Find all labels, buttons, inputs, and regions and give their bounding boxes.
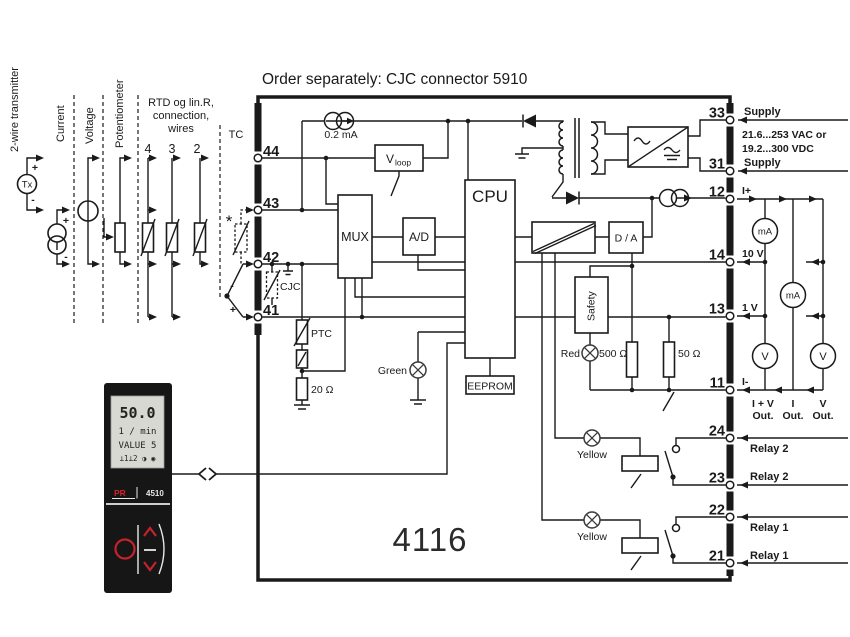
- acdc-converter: [628, 127, 688, 167]
- terminal-22-number: 22: [709, 503, 725, 519]
- wiring-diagram: Order separately: CJC connector 5910 411…: [0, 0, 850, 637]
- ma-meter-label: mA: [758, 227, 773, 238]
- plus-sign: +: [63, 215, 69, 227]
- label-voltage: Voltage: [84, 107, 96, 144]
- terminal-24-number: 24: [709, 424, 725, 440]
- relay1-label: Relay 1: [750, 522, 789, 534]
- i-minus-label: I-: [742, 376, 749, 388]
- minus-sign: -: [31, 194, 35, 206]
- relay1-contact: [673, 525, 680, 532]
- lcd-status-icons: ⊥1⊥2 ◑ ◉: [119, 454, 156, 463]
- terminal-42: [254, 258, 263, 271]
- terminal-11: [726, 384, 735, 397]
- terminal-24: [726, 432, 735, 445]
- yellow-led-label: Yellow: [577, 449, 607, 461]
- label-wire2: 2: [194, 142, 201, 156]
- lcd-line3: VALUE 5: [119, 441, 157, 451]
- relay2-coil: [622, 456, 658, 471]
- external-output-wiring: [737, 117, 848, 567]
- terminal-44-number: 44: [263, 144, 279, 160]
- safety-label: Safety: [586, 290, 598, 321]
- red-led-label: Red: [561, 348, 580, 360]
- eeprom-label: EEPROM: [467, 381, 513, 393]
- mux-label: MUX: [341, 230, 369, 244]
- trim-resistor: [297, 350, 308, 368]
- r20-resistor: [297, 378, 308, 400]
- r50-label: 50 Ω: [678, 348, 701, 360]
- terminal-41-number: 41: [263, 303, 279, 319]
- out2-suffix: Out.: [783, 410, 804, 422]
- label-2wire-transmitter: 2-wire transmitter: [9, 67, 21, 152]
- r500-resistor: [627, 342, 638, 377]
- r50-resistor: [664, 342, 675, 377]
- potentiometer-symbol: [115, 223, 125, 252]
- terminal-12-number: 12: [709, 185, 725, 201]
- supply-range-2: 19.2...300 VDC: [742, 143, 814, 155]
- i-plus-label: I+: [742, 185, 751, 197]
- cpu-block: [465, 180, 515, 358]
- v-meter-label: V: [819, 351, 827, 363]
- plus-sign: +: [230, 304, 236, 316]
- supply-label-top: Supply: [744, 106, 782, 118]
- label-wire4: 4: [145, 142, 152, 156]
- vloop-sub-label: loop: [395, 158, 411, 168]
- cjc-label: CJC: [280, 281, 301, 293]
- plus-sign: +: [32, 162, 38, 174]
- v-meter-label: V: [761, 351, 769, 363]
- lcd-unit: 1 / min: [119, 427, 157, 437]
- label-current: Current: [55, 105, 67, 142]
- terminal-33: [726, 114, 735, 127]
- relay2-contact: [673, 446, 680, 453]
- ptc-resistor: [294, 318, 310, 346]
- red-led-icon: [582, 345, 598, 361]
- v10-label: 10 V: [742, 248, 764, 260]
- yellow-led-label: Yellow: [577, 531, 607, 543]
- terminal-21: [726, 557, 735, 570]
- out1-suffix: Out.: [753, 410, 774, 422]
- yellow-led-icon: [584, 430, 600, 446]
- relay1-coil: [622, 538, 658, 553]
- label-rtd-3: wires: [167, 123, 194, 135]
- terminal-31-number: 31: [709, 157, 725, 173]
- input-symbols: [18, 175, 250, 257]
- label-rtd-1: RTD og lin.R,: [148, 97, 214, 109]
- terminal-31: [726, 165, 735, 178]
- minus-sign: -: [230, 280, 234, 292]
- schematic-page: Order separately: CJC connector 5910 411…: [0, 0, 850, 637]
- label-rtd-2: connection,: [153, 110, 209, 122]
- terminal-13: [726, 310, 735, 323]
- input-labels: 2-wire transmitter Current Voltage Poten…: [9, 67, 243, 316]
- label-wire3: 3: [169, 142, 176, 156]
- terminal-12: [726, 193, 735, 206]
- minus-sign: -: [64, 251, 68, 263]
- supply-range-1: 21.6...253 VAC or: [742, 129, 826, 141]
- relay2-label: Relay 2: [750, 443, 789, 455]
- right-side-labels: Supply 21.6...253 VAC or 19.2...300 VDC …: [742, 106, 834, 562]
- ma-meter-label: mA: [786, 291, 801, 302]
- rtd-3wire-symbol: [165, 219, 179, 256]
- terminal-14-number: 14: [709, 248, 725, 264]
- page-title: Order separately: CJC connector 5910: [262, 71, 528, 88]
- vloop-label: V: [386, 152, 394, 166]
- terminal-22: [726, 511, 735, 524]
- rtd-4wire-symbol: [141, 219, 155, 256]
- isolation-barrier: [532, 222, 596, 254]
- relay1-label: Relay 1: [750, 550, 789, 562]
- green-led-icon: [410, 362, 426, 378]
- ptc-label: PTC: [311, 328, 332, 340]
- cpu-label: CPU: [472, 187, 508, 206]
- rtd-2wire-symbol: [193, 219, 207, 256]
- yellow-led-icon: [584, 512, 600, 528]
- display-unit-4510: 50.0 1 / min VALUE 5 ⊥1⊥2 ◑ ◉ PR 4510: [104, 383, 172, 593]
- terminal-21-number: 21: [709, 549, 725, 565]
- out3-suffix: Out.: [813, 410, 834, 422]
- terminal-44: [254, 152, 263, 165]
- terminal-43-number: 43: [263, 196, 279, 212]
- r20-label: 20 Ω: [311, 384, 334, 396]
- terminal-33-number: 33: [709, 106, 725, 122]
- terminal-43: [254, 204, 263, 217]
- voltage-source-symbol: [78, 201, 98, 221]
- out3-label: V: [819, 398, 826, 410]
- green-led-label: Green: [378, 365, 407, 377]
- transformer-symbol: [559, 118, 598, 178]
- tc-cjc-sensor-symbol: [233, 221, 249, 255]
- display-model: 4510: [146, 489, 164, 498]
- terminal-41: [254, 311, 263, 324]
- model-number: 4116: [393, 521, 468, 558]
- terminal-11-number: 11: [710, 376, 725, 392]
- label-tc: TC: [229, 129, 244, 141]
- terminal-14: [726, 256, 735, 269]
- terminal-23-number: 23: [709, 471, 725, 487]
- v1-label: 1 V: [742, 302, 758, 314]
- terminal-23: [726, 479, 735, 492]
- source-0-2ma-label: 0.2 mA: [324, 129, 357, 141]
- out1-label: I + V: [752, 398, 774, 410]
- label-potentiometer: Potentiometer: [114, 79, 126, 148]
- supply-label-bottom: Supply: [744, 157, 782, 169]
- terminal-13-number: 13: [709, 302, 725, 318]
- diode-icon: [523, 115, 536, 128]
- cjc-optional-star: *: [226, 212, 233, 231]
- lcd-value: 50.0: [119, 404, 155, 422]
- diode-icon: [566, 192, 579, 205]
- tx-label: Tx: [22, 180, 33, 191]
- r500-label: 500 Ω: [599, 348, 627, 360]
- out2-label: I: [792, 398, 795, 410]
- relay2-label: Relay 2: [750, 471, 789, 483]
- da-label: D / A: [615, 233, 638, 245]
- ad-label: A/D: [409, 230, 429, 244]
- brand-logo: PR: [114, 488, 126, 498]
- cjc-resistor: [264, 270, 280, 300]
- terminal-42-number: 42: [263, 250, 279, 266]
